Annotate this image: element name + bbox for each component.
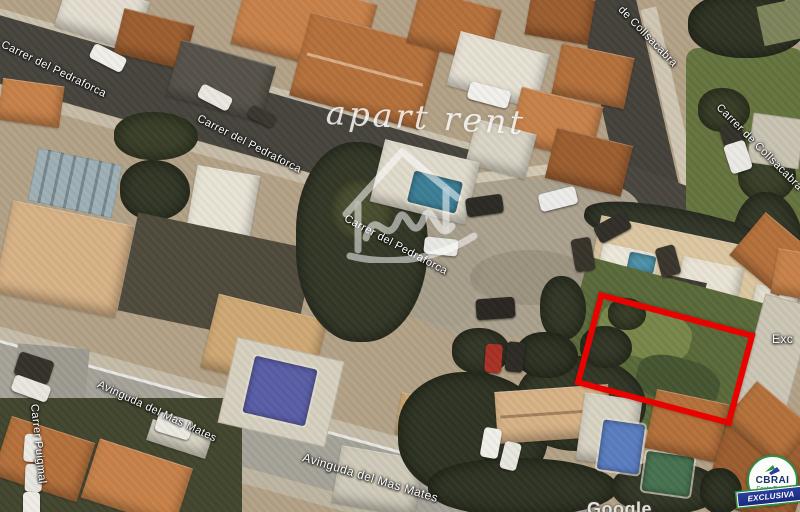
satellite-map[interactable]: Carrer del Pedraforca Carrer del Pedrafo… (0, 0, 800, 512)
agency-badge: CBRAI Costa Brava EXCLUSIVA (741, 451, 800, 512)
watermark-house-logo-icon (332, 138, 492, 263)
scrubland (756, 0, 800, 46)
exclusive-ribbon: EXCLUSIVA (736, 485, 800, 507)
roof (524, 0, 595, 45)
trees (516, 332, 578, 378)
street-label-partial: Exc (772, 332, 793, 346)
covered-pool (641, 451, 694, 497)
roof (0, 200, 134, 318)
trees (700, 468, 742, 512)
agency-flag-icon (765, 465, 780, 475)
swimming-pool (597, 419, 646, 474)
google-attribution[interactable]: Google (587, 499, 652, 512)
trees (540, 276, 586, 340)
trees (120, 160, 190, 220)
agency-name: CBRAI (756, 476, 790, 486)
exclusive-ribbon-text: EXCLUSIVA (747, 490, 795, 504)
car (475, 297, 515, 321)
trees (114, 112, 198, 160)
car (504, 341, 525, 373)
roof (0, 78, 65, 128)
car (23, 492, 40, 512)
red-car (484, 343, 503, 373)
